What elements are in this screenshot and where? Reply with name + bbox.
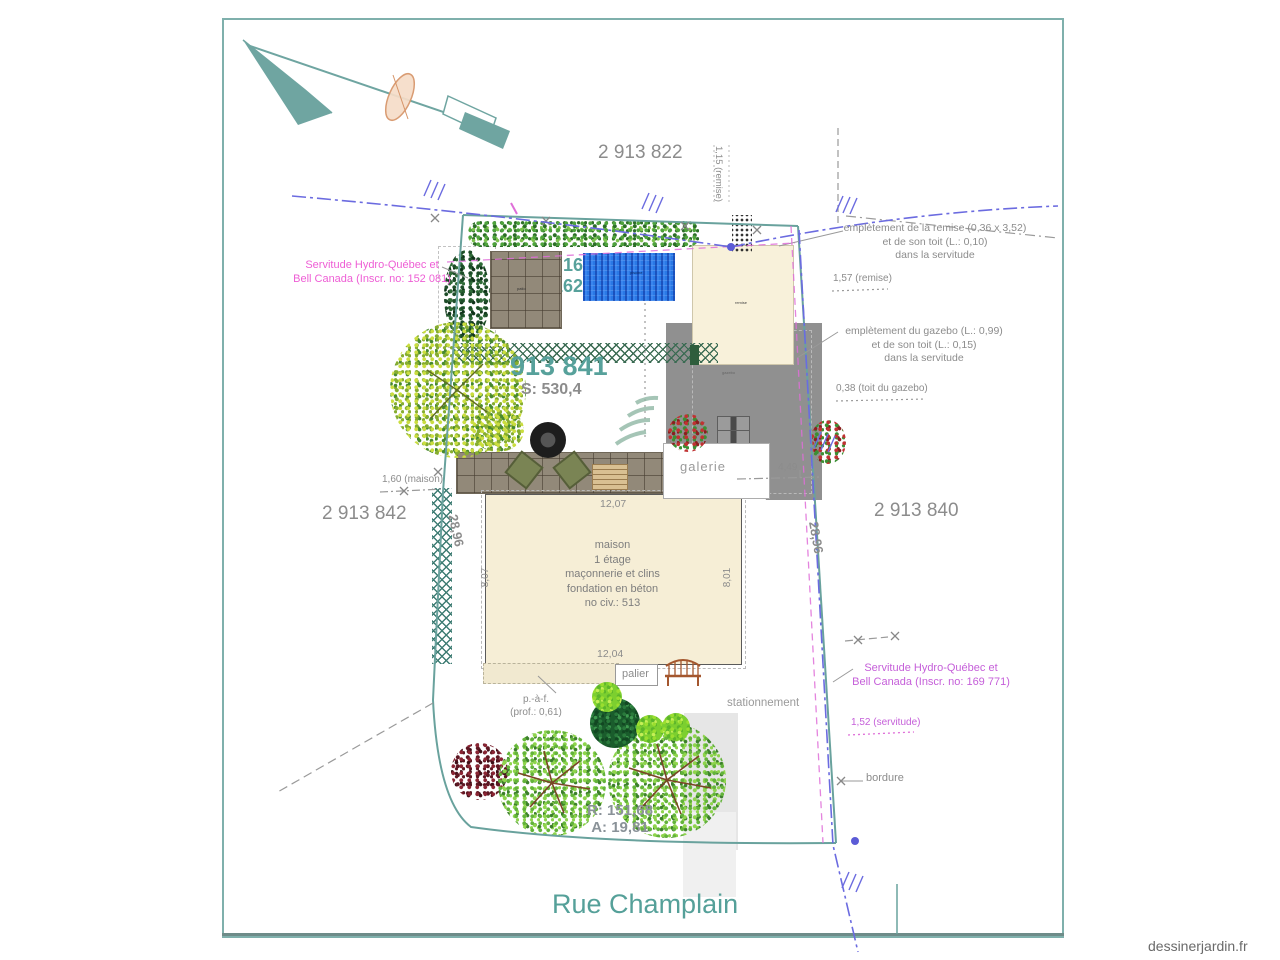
- servitude-right-line2: Bell Canada (Inscr. no: 169 771): [852, 675, 1010, 689]
- annotation-gazebo: emplètement du gazebo (L.: 0,99) et de s…: [840, 325, 1008, 366]
- annotation-gazebo-line2: et de son toit (L.: 0,15): [840, 339, 1008, 353]
- dim-gazebo-roof: 0,38 (toit du gazebo): [836, 383, 928, 394]
- label-galerie: galerie: [680, 459, 726, 474]
- dim-remise-offset: 1,57 (remise): [833, 273, 892, 284]
- dim-house-top: 12,07: [600, 498, 626, 510]
- bush-bright-2[interactable]: [636, 715, 664, 743]
- dim-house-bottom: 12,04: [597, 648, 623, 660]
- dim-house-left: 8,07: [480, 568, 491, 587]
- watermark: dessinerjardin.fr: [1148, 938, 1248, 954]
- site-plan: 2 913 822 2 913 842 2 913 840 913 841 S:…: [0, 0, 1280, 960]
- overhang-line2: (prof.: 0,61): [505, 706, 567, 719]
- frame-bottom-line: [222, 933, 1064, 936]
- servitude-right-text: Servitude Hydro-Québec et Bell Canada (I…: [852, 661, 1010, 689]
- house-line4: fondation en béton: [485, 582, 740, 597]
- dim-servitude-width: 1,52 (servitude): [851, 717, 920, 728]
- street-name: Rue Champlain: [552, 889, 738, 920]
- fence-ladder-top[interactable]: [732, 215, 752, 252]
- patio-top[interactable]: [490, 251, 562, 329]
- label-palier: palier: [622, 668, 649, 680]
- lot-main-area: S: 530,4: [521, 381, 581, 399]
- house-line3: maçonnerie et clins: [485, 567, 740, 582]
- annotation-gazebo-line3: dans la servitude: [840, 352, 1008, 366]
- bush-bright-1[interactable]: [592, 682, 622, 712]
- curve-arc: A: 19,81: [565, 819, 675, 836]
- servitude-left-line1: Servitude Hydro-Québec et: [287, 258, 457, 272]
- annotation-remise-line1: emplètement de la remise (0,36 x 3,52): [842, 222, 1028, 236]
- bush-bright-3[interactable]: [662, 713, 690, 741]
- house-line1: maison: [485, 538, 740, 553]
- remise-tag: remise: [735, 300, 747, 305]
- servitude-left-line2: Bell Canada (Inscr. no: 152 081): [287, 272, 457, 286]
- lot-number-left: 2 913 842: [322, 503, 407, 525]
- label-bordure: bordure: [866, 772, 904, 784]
- house-line5: no civ.: 513: [485, 596, 740, 611]
- tree-large-top-blob[interactable]: [472, 408, 524, 452]
- lot-number-right: 2 913 840: [874, 500, 959, 522]
- curve-radius: R: 151,68: [565, 802, 675, 819]
- dim-maison-offset: 1,60 (maison): [382, 474, 443, 485]
- storage-unit[interactable]: [717, 416, 750, 445]
- lot-number-top: 2 913 822: [598, 142, 683, 164]
- flower-bush-right[interactable]: [810, 420, 846, 464]
- pool-tag: piscine: [630, 270, 642, 275]
- bench-patio[interactable]: [592, 464, 628, 490]
- annotation-remise: emplètement de la remise (0,36 x 3,52) e…: [842, 222, 1028, 263]
- hedge-top[interactable]: [468, 221, 700, 247]
- house-text-block: maison 1 étage maçonnerie et clins fonda…: [485, 538, 740, 611]
- flower-bush-left[interactable]: [668, 414, 708, 452]
- annotation-remise-line2: et de son toit (L.: 0,10): [842, 236, 1028, 250]
- dim-galerie: 4,49: [778, 462, 797, 473]
- curve-data: R: 151,68 A: 19,81: [565, 802, 675, 836]
- servitude-left-text: Servitude Hydro-Québec et Bell Canada (I…: [287, 258, 457, 286]
- label-stationnement: stationnement: [727, 697, 799, 709]
- gazebo-tag: gazebo: [722, 370, 735, 375]
- annotation-gazebo-line1: emplètement du gazebo (L.: 0,99): [840, 325, 1008, 339]
- house-overhang[interactable]: [483, 663, 619, 684]
- overhang-line1: p.-à-f.: [505, 693, 567, 706]
- swimming-pool[interactable]: [583, 253, 675, 301]
- trellis-panel[interactable]: [690, 345, 699, 365]
- annotation-remise-line3: dans la servitude: [842, 249, 1028, 263]
- lot-number-main: 913 841: [510, 351, 608, 382]
- dim-house-right: 8,01: [722, 568, 733, 587]
- servitude-right-line1: Servitude Hydro-Québec et: [852, 661, 1010, 675]
- annotation-overhang: p.-à-f. (prof.: 0,61): [505, 693, 567, 719]
- fire-pit[interactable]: [530, 422, 566, 458]
- dim-remise-side: 1,15 (remise): [713, 146, 724, 202]
- patio-tag: patio: [517, 286, 526, 291]
- house-line2: 1 étage: [485, 553, 740, 568]
